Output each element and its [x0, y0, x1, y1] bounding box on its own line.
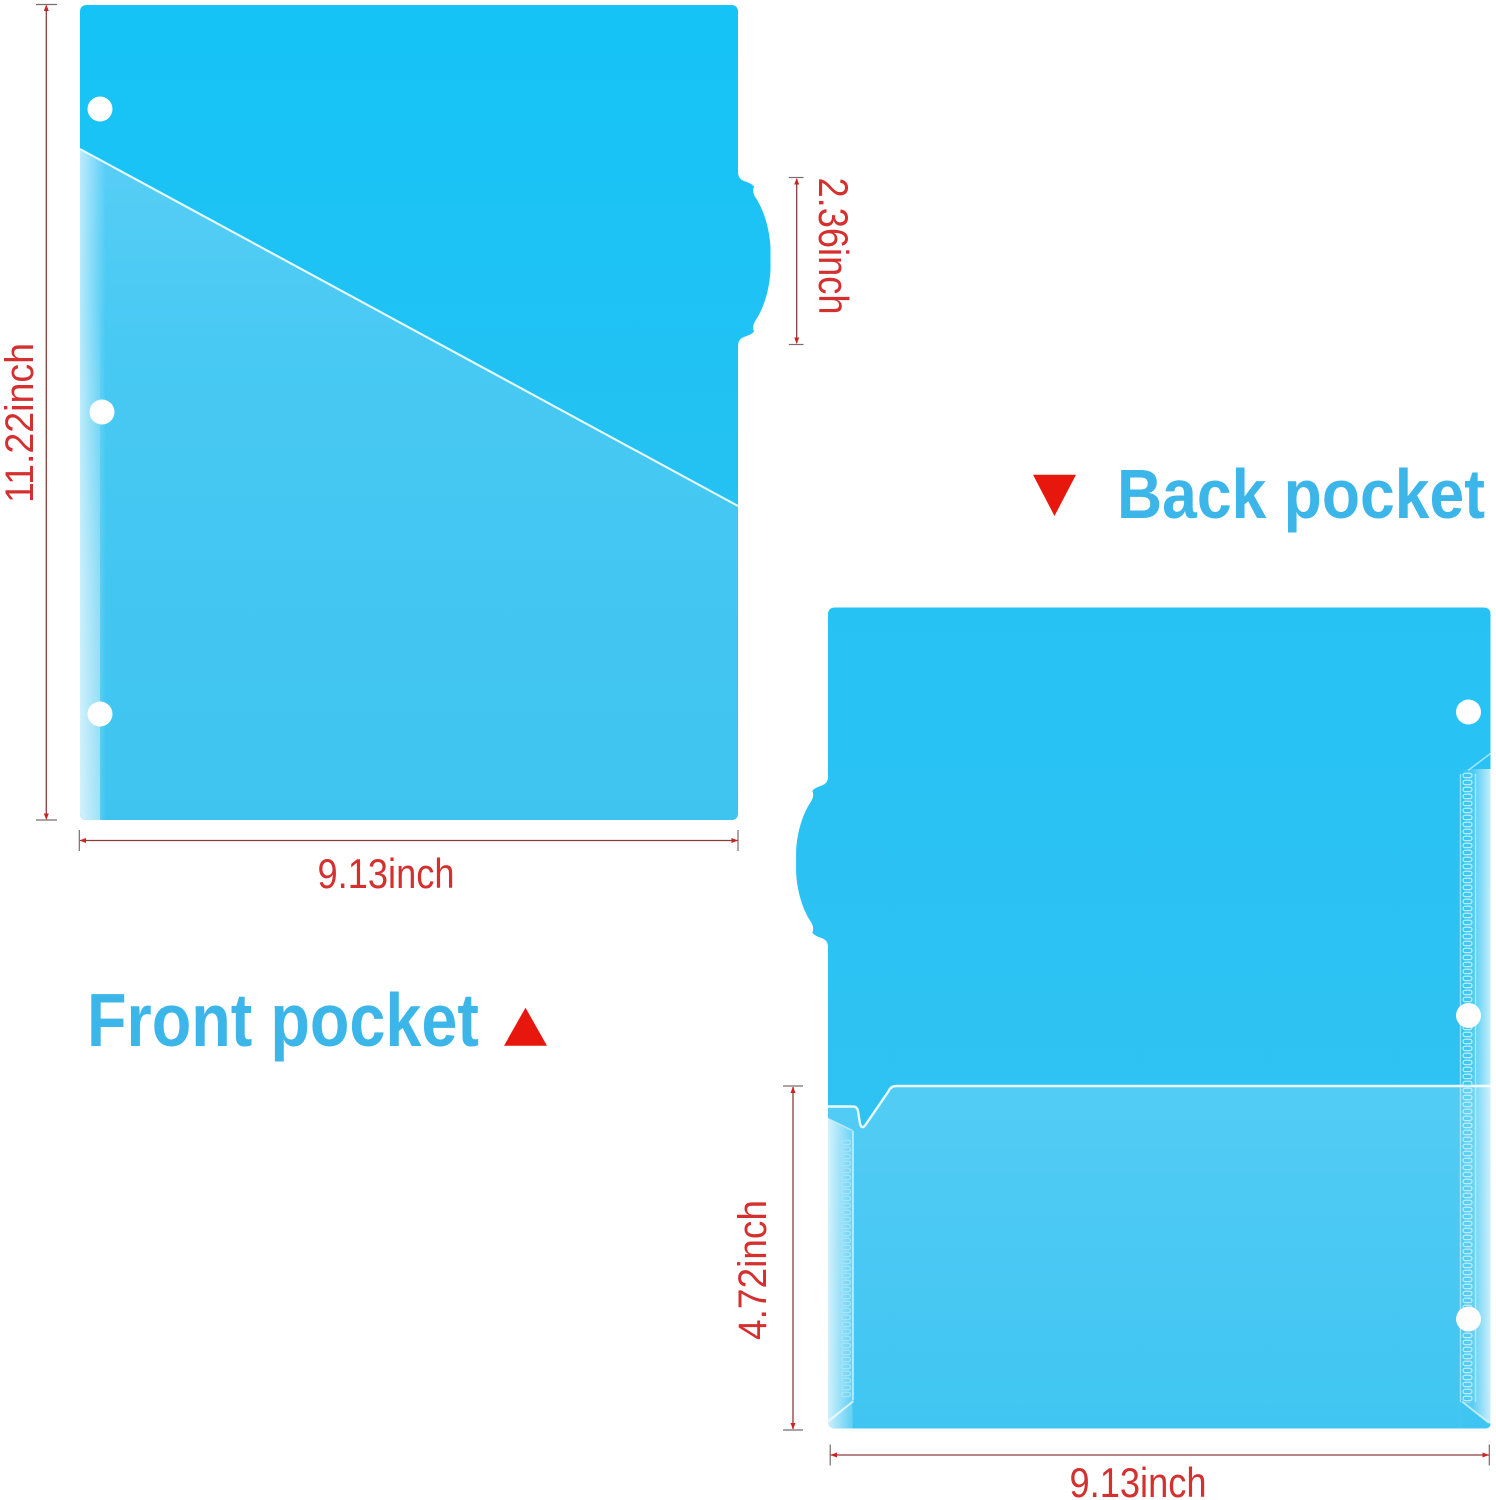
- svg-text:Front pocket: Front pocket: [87, 978, 479, 1062]
- svg-text:2.36inch: 2.36inch: [810, 178, 857, 315]
- svg-text:9.13inch: 9.13inch: [1070, 1459, 1207, 1500]
- svg-text:9.13inch: 9.13inch: [318, 850, 455, 897]
- svg-text:4.72inch: 4.72inch: [731, 1200, 775, 1340]
- svg-text:11.22inch: 11.22inch: [0, 343, 42, 503]
- svg-text:Back pocket: Back pocket: [1117, 455, 1485, 533]
